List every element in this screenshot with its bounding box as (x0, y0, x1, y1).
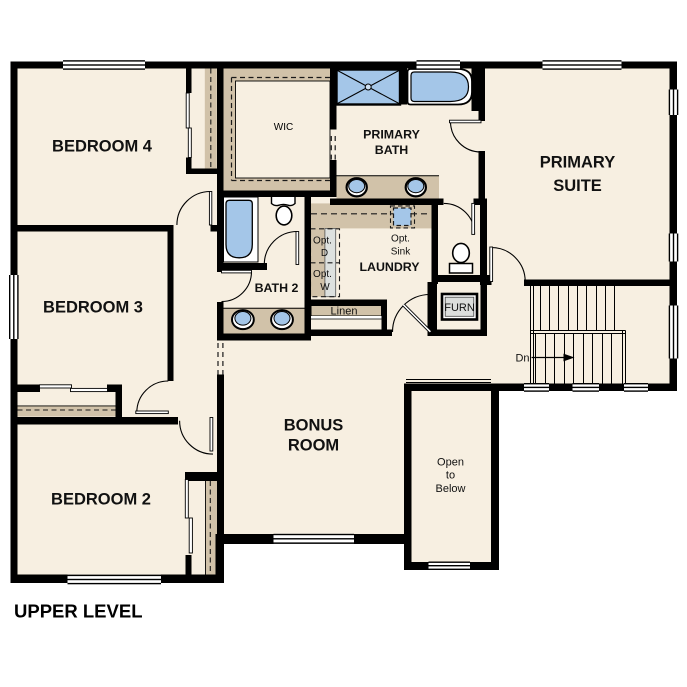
svg-text:Dn: Dn (515, 353, 529, 365)
svg-text:Linen: Linen (331, 306, 358, 318)
svg-text:BONUS: BONUS (284, 417, 344, 435)
svg-text:BEDROOM 2: BEDROOM 2 (51, 491, 151, 509)
svg-text:BEDROOM 4: BEDROOM 4 (52, 138, 153, 156)
svg-text:BATH 2: BATH 2 (255, 281, 299, 295)
svg-text:SUITE: SUITE (553, 177, 602, 195)
svg-text:BATH: BATH (375, 143, 409, 157)
svg-text:BEDROOM 3: BEDROOM 3 (43, 299, 143, 317)
svg-text:FURN: FURN (444, 302, 475, 314)
svg-text:Opt.: Opt. (391, 234, 410, 245)
svg-text:ROOM: ROOM (288, 437, 339, 455)
svg-text:LAUNDRY: LAUNDRY (359, 260, 420, 274)
svg-text:to: to (446, 470, 455, 482)
svg-text:WIC: WIC (274, 122, 293, 133)
svg-text:UPPER LEVEL: UPPER LEVEL (14, 601, 143, 622)
svg-text:PRIMARY: PRIMARY (540, 154, 615, 172)
svg-text:Sink: Sink (391, 247, 411, 258)
svg-text:Opt.: Opt. (313, 269, 332, 280)
svg-text:Below: Below (436, 483, 466, 495)
svg-text:W: W (320, 282, 330, 293)
svg-text:D: D (321, 248, 328, 259)
svg-text:Open: Open (437, 457, 464, 469)
svg-text:PRIMARY: PRIMARY (363, 128, 420, 142)
svg-text:Opt.: Opt. (313, 236, 332, 247)
